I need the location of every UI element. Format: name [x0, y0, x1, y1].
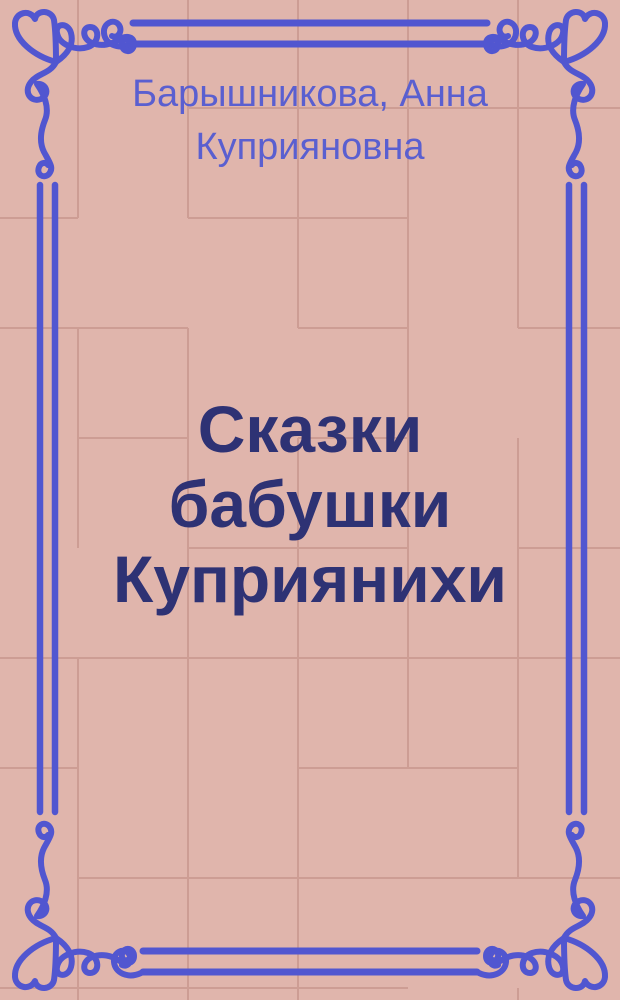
author-name: Барышникова, Анна Куприяновна	[70, 68, 550, 174]
book-cover: Барышникова, Анна Куприяновна Сказки баб…	[0, 0, 620, 1000]
book-title: Сказки бабушки Куприянихи	[70, 392, 550, 617]
